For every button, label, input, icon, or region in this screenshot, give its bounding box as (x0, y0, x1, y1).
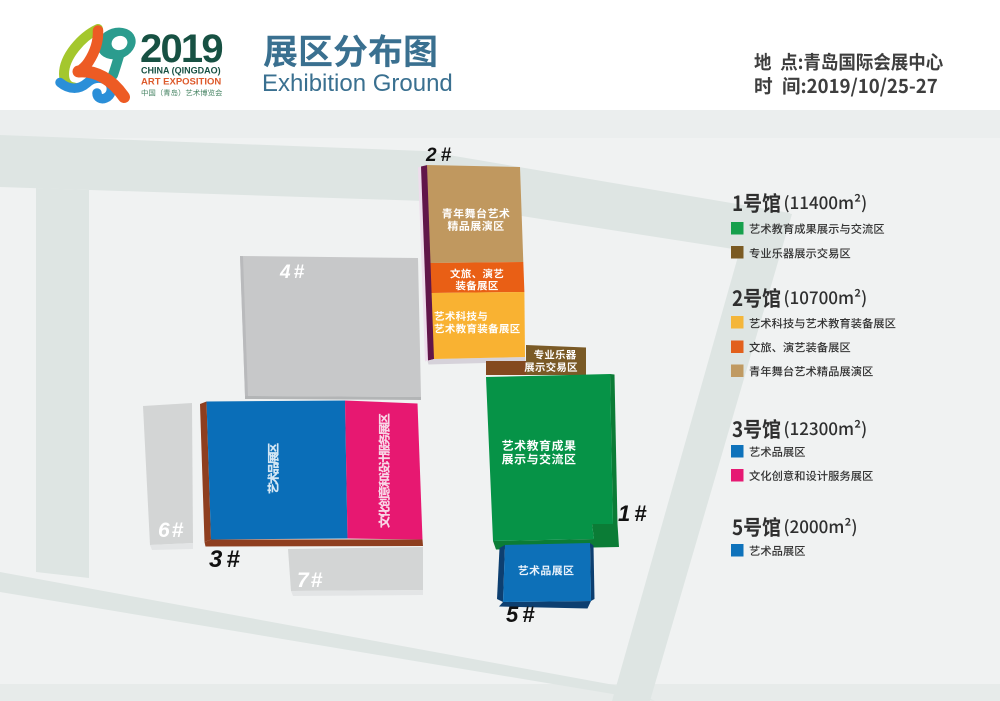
svg-text:3#: 3# (209, 546, 244, 573)
svg-text:7#: 7# (297, 569, 324, 592)
svg-text:2#: 2# (425, 145, 455, 166)
svg-text:5#: 5# (506, 602, 538, 627)
svg-text:6#: 6# (158, 519, 185, 542)
svg-text:Exhibition Ground: Exhibition Ground (262, 70, 453, 97)
svg-text:1#: 1# (618, 501, 650, 526)
svg-text:ART EXPOSITION: ART EXPOSITION (141, 77, 221, 88)
svg-text:2019: 2019 (140, 27, 222, 71)
svg-text:4#: 4# (279, 262, 307, 283)
svg-text:CHINA (QINGDAO): CHINA (QINGDAO) (141, 66, 221, 76)
